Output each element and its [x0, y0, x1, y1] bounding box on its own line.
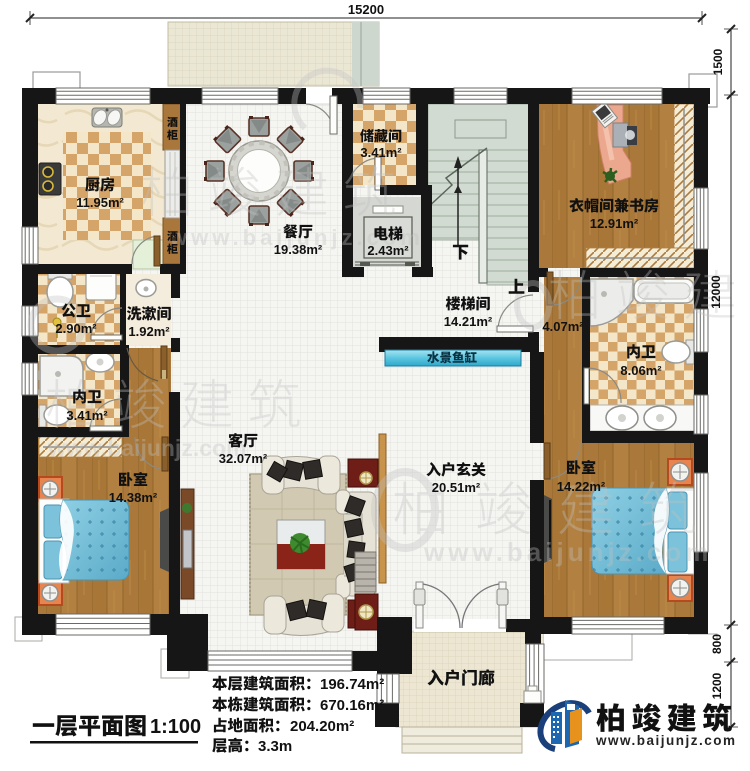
- svg-text:3.41m²: 3.41m²: [66, 408, 108, 423]
- svg-text:15200: 15200: [348, 2, 384, 17]
- svg-text:32.07m²: 32.07m²: [219, 451, 268, 466]
- svg-text:www.baijunjz.com: www.baijunjz.com: [423, 537, 712, 567]
- svg-text:1200: 1200: [710, 672, 724, 699]
- svg-text:12000: 12000: [709, 275, 723, 309]
- svg-text:800: 800: [710, 634, 724, 654]
- svg-text:8.06m²: 8.06m²: [620, 363, 662, 378]
- svg-text:11.95m²: 11.95m²: [76, 195, 124, 210]
- svg-text:2.43m²: 2.43m²: [367, 243, 409, 258]
- svg-text:14.38m²: 14.38m²: [109, 490, 158, 505]
- svg-text:www.baijunjz.com: www.baijunjz.com: [595, 733, 737, 748]
- svg-text:14.21m²: 14.21m²: [444, 314, 493, 329]
- svg-text:3.3m: 3.3m: [258, 738, 292, 755]
- svg-text:3.41m²: 3.41m²: [360, 145, 402, 160]
- svg-text:2.90m²: 2.90m²: [55, 321, 97, 336]
- svg-text:4.07m²: 4.07m²: [542, 319, 584, 334]
- svg-text:19.38m²: 19.38m²: [274, 242, 323, 257]
- svg-text:1:100: 1:100: [150, 716, 201, 738]
- svg-text:204.20m²: 204.20m²: [290, 718, 354, 735]
- svg-text:www.baijunjz.com: www.baijunjz.com: [47, 435, 247, 461]
- svg-text:20.51m²: 20.51m²: [432, 480, 481, 495]
- svg-text:196.74m²: 196.74m²: [320, 676, 384, 693]
- svg-text:14.22m²: 14.22m²: [557, 479, 606, 494]
- svg-text:1.92m²: 1.92m²: [128, 324, 170, 339]
- svg-text:1500: 1500: [711, 48, 725, 75]
- svg-text:670.16m²: 670.16m²: [320, 697, 384, 714]
- svg-text:12.91m²: 12.91m²: [590, 216, 639, 231]
